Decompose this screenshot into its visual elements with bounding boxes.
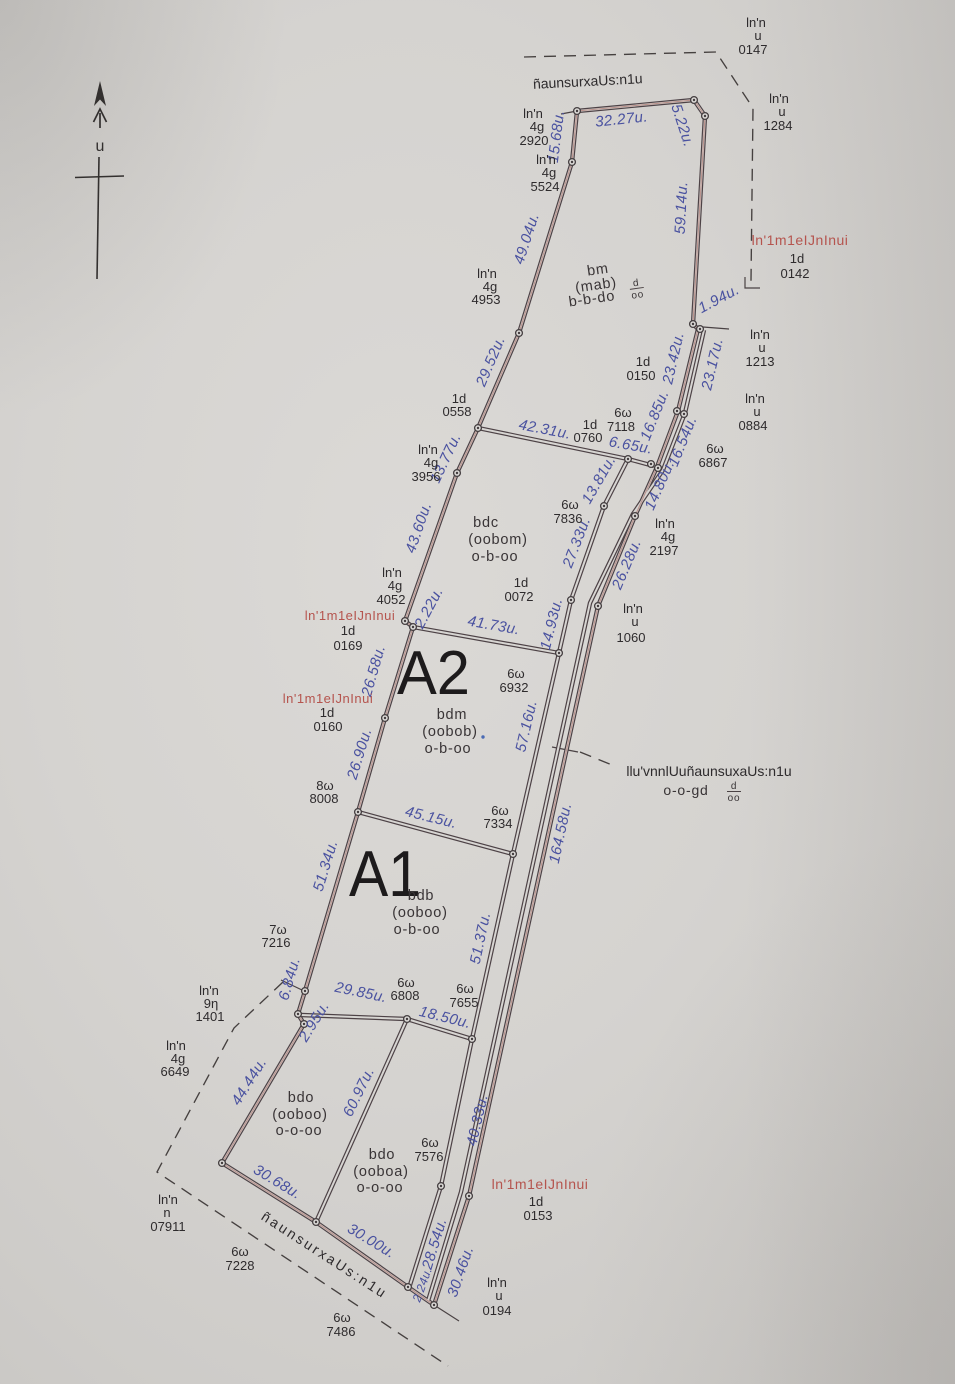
svg-text:2197: 2197	[650, 543, 679, 558]
svg-text:ln'1m1eIJnInui: ln'1m1eIJnInui	[305, 608, 395, 623]
svg-text:bdo: bdo	[369, 1147, 396, 1163]
svg-text:u: u	[778, 104, 785, 119]
svg-text:7216: 7216	[262, 935, 291, 950]
svg-text:07911: 07911	[150, 1219, 185, 1234]
svg-text:(ooboo): (ooboo)	[392, 905, 448, 921]
svg-text:4953: 4953	[472, 292, 501, 307]
svg-text:6ω: 6ω	[333, 1310, 350, 1325]
svg-text:0147: 0147	[739, 42, 768, 57]
svg-text:1d: 1d	[790, 251, 804, 266]
svg-text:4g: 4g	[661, 529, 675, 544]
svg-text:1284: 1284	[764, 118, 793, 133]
svg-text:7486: 7486	[327, 1324, 356, 1339]
svg-text:4g: 4g	[424, 455, 438, 470]
svg-text:6ω: 6ω	[421, 1135, 438, 1150]
svg-text:bdm: bdm	[437, 707, 468, 723]
svg-text:1213: 1213	[746, 354, 775, 369]
svg-text:7655: 7655	[450, 995, 479, 1010]
svg-text:6ω: 6ω	[231, 1244, 248, 1259]
svg-text:1d: 1d	[514, 575, 528, 590]
svg-text:A2: A2	[397, 639, 470, 708]
svg-text:0160: 0160	[314, 719, 343, 734]
svg-text:d: d	[731, 781, 737, 792]
svg-text:6ω: 6ω	[561, 497, 578, 512]
svg-text:u: u	[631, 614, 638, 629]
svg-text:0558: 0558	[443, 404, 472, 419]
svg-text:4g: 4g	[388, 578, 402, 593]
svg-text:1060: 1060	[617, 630, 646, 645]
svg-text:llu'vnnlUuñaunsuxaUs:n1u: llu'vnnlUuñaunsuxaUs:n1u	[626, 763, 791, 779]
svg-text:u: u	[754, 28, 761, 43]
svg-text:6808: 6808	[391, 988, 420, 1003]
svg-text:u: u	[495, 1288, 502, 1303]
svg-text:7836: 7836	[554, 511, 583, 526]
svg-text:1d: 1d	[320, 705, 334, 720]
svg-text:5524: 5524	[531, 179, 560, 194]
svg-text:0760: 0760	[574, 430, 603, 445]
svg-text:bdc: bdc	[473, 515, 499, 531]
svg-text:(oobom): (oobom)	[468, 532, 528, 548]
svg-text:0194: 0194	[483, 1303, 512, 1318]
svg-text:ln'1m1eIJnInui: ln'1m1eIJnInui	[492, 1176, 589, 1192]
svg-text:6ω: 6ω	[456, 981, 473, 996]
svg-text:4g: 4g	[530, 119, 544, 134]
svg-text:ln'1m1eIJnInui: ln'1m1eIJnInui	[752, 232, 849, 248]
svg-text:o-b-oo: o-b-oo	[472, 549, 519, 565]
svg-text:7576: 7576	[415, 1149, 444, 1164]
svg-text:1d: 1d	[341, 623, 355, 638]
svg-text:6ω: 6ω	[507, 666, 524, 681]
svg-text:2920: 2920	[520, 133, 549, 148]
svg-text:6ω: 6ω	[614, 405, 631, 420]
svg-text:(ooboa): (ooboa)	[353, 1164, 409, 1180]
svg-text:u: u	[758, 340, 765, 355]
svg-text:6932: 6932	[500, 680, 529, 695]
svg-text:n: n	[163, 1205, 170, 1220]
svg-text:0150: 0150	[627, 368, 656, 383]
svg-text:4052: 4052	[377, 592, 406, 607]
svg-text:6867: 6867	[699, 455, 728, 470]
svg-text:u: u	[753, 404, 760, 419]
svg-text:oo: oo	[631, 289, 645, 302]
svg-text:oo: oo	[728, 793, 741, 804]
svg-text:0153: 0153	[524, 1208, 553, 1223]
svg-text:4g: 4g	[542, 165, 556, 180]
svg-text:6649: 6649	[161, 1064, 190, 1079]
svg-text:o-b-oo: o-b-oo	[394, 922, 441, 938]
svg-text:o-o-oo: o-o-oo	[357, 1180, 404, 1196]
svg-text:(oobob): (oobob)	[422, 724, 478, 740]
svg-text:7228: 7228	[226, 1258, 255, 1273]
svg-text:o-o-gd: o-o-gd	[663, 782, 708, 798]
svg-text:7118: 7118	[607, 419, 635, 434]
svg-text:bdo: bdo	[288, 1090, 315, 1106]
svg-text:(ooboo): (ooboo)	[272, 1107, 328, 1123]
svg-text:0142: 0142	[781, 266, 810, 281]
svg-text:bdb: bdb	[408, 888, 435, 904]
svg-text:ln'1m1eIJnInui: ln'1m1eIJnInui	[283, 691, 373, 706]
svg-text:1401: 1401	[196, 1009, 225, 1024]
svg-text:0884: 0884	[739, 418, 768, 433]
svg-text:o-o-oo: o-o-oo	[276, 1123, 323, 1139]
svg-text:8008: 8008	[310, 791, 339, 806]
svg-text:6ω: 6ω	[706, 441, 723, 456]
svg-text:3956: 3956	[412, 469, 441, 484]
svg-text:u: u	[96, 138, 105, 155]
svg-text:o-b-oo: o-b-oo	[425, 741, 472, 757]
svg-text:0169: 0169	[334, 638, 363, 653]
svg-text:0072: 0072	[505, 589, 534, 604]
svg-text:59.14u.: 59.14u.	[672, 181, 692, 235]
svg-text:1d: 1d	[529, 1194, 543, 1209]
svg-text:1d: 1d	[636, 354, 650, 369]
svg-text:7334: 7334	[484, 816, 513, 831]
